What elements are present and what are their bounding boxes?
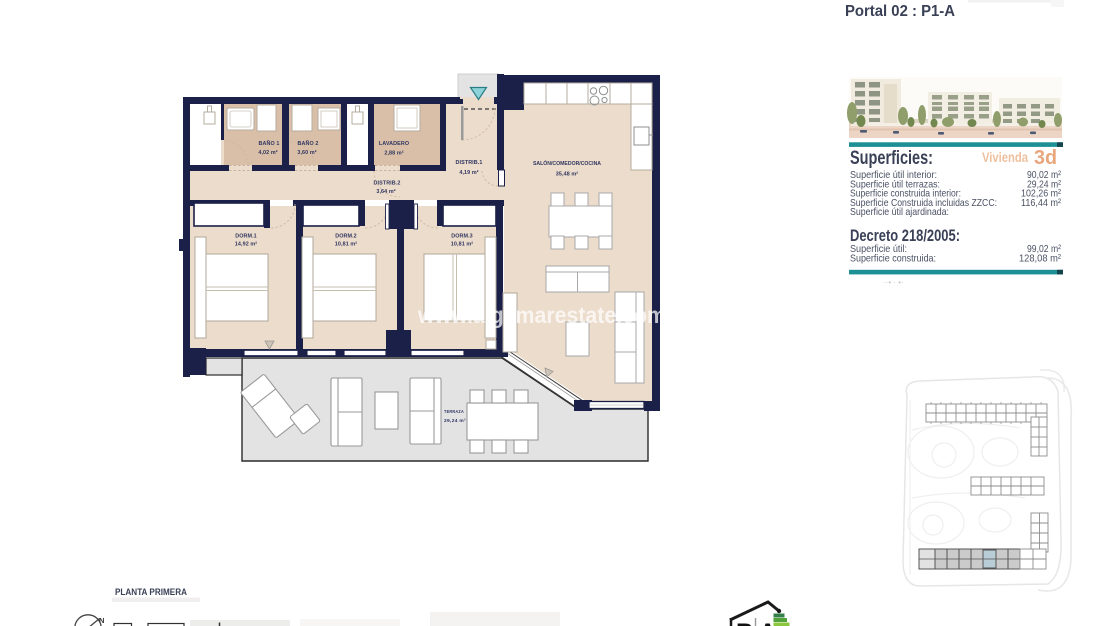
svg-text:Superficies:: Superficies: [850,148,933,169]
svg-text:TERRAZA: TERRAZA [444,409,464,415]
svg-text:Portal 02 : P1-A: Portal 02 : P1-A [845,3,955,20]
svg-text:PLANTA PRIMERA: PLANTA PRIMERA [115,587,187,597]
svg-text:3d: 3d [1034,147,1057,169]
svg-text:3,60 m²: 3,60 m² [297,150,316,156]
svg-text:4,02 m²: 4,02 m² [258,150,277,156]
svg-text:3,64 m²: 3,64 m² [376,189,395,195]
svg-text:DISTRIB.2: DISTRIB.2 [374,181,401,187]
svg-text:Decreto 218/2005:: Decreto 218/2005: [850,226,960,245]
svg-text:www.algamarestate.com: www.algamarestate.com [417,302,666,328]
svg-text:DORM.1: DORM.1 [235,234,257,240]
svg-text:Vivienda: Vivienda [982,150,1028,165]
svg-text:LAVADERO: LAVADERO [379,141,409,147]
svg-text:Superficie construida:: Superficie construida: [850,254,936,265]
svg-text:B: B [736,619,753,626]
svg-text:DORM.2: DORM.2 [335,234,357,240]
svg-text:128,08 m²: 128,08 m² [1019,254,1062,265]
svg-text:SALÓN/COMEDOR/COCINA: SALÓN/COMEDOR/COCINA [533,159,601,167]
svg-text:··• · •·: ··• · •· [883,278,904,287]
svg-text:DISTRIB.1: DISTRIB.1 [456,160,483,166]
svg-text:10,81 m²: 10,81 m² [451,242,473,248]
svg-text:2,88 m²: 2,88 m² [384,151,403,157]
svg-text:DORM.3: DORM.3 [451,234,473,240]
svg-text:Superficie útil ajardinada:: Superficie útil ajardinada: [850,207,949,218]
svg-text:BAÑO 2: BAÑO 2 [298,140,319,147]
svg-text:4,19 m²: 4,19 m² [459,170,478,176]
svg-text:29,24 m²: 29,24 m² [444,418,466,424]
svg-text:BAÑO 1: BAÑO 1 [259,140,280,147]
svg-text:N: N [99,616,104,625]
svg-text:35,48 m²: 35,48 m² [556,172,578,178]
svg-text:116,44 m²: 116,44 m² [1021,198,1062,209]
svg-text:10,81 m²: 10,81 m² [335,242,357,248]
svg-text:14,92 m²: 14,92 m² [235,242,257,248]
